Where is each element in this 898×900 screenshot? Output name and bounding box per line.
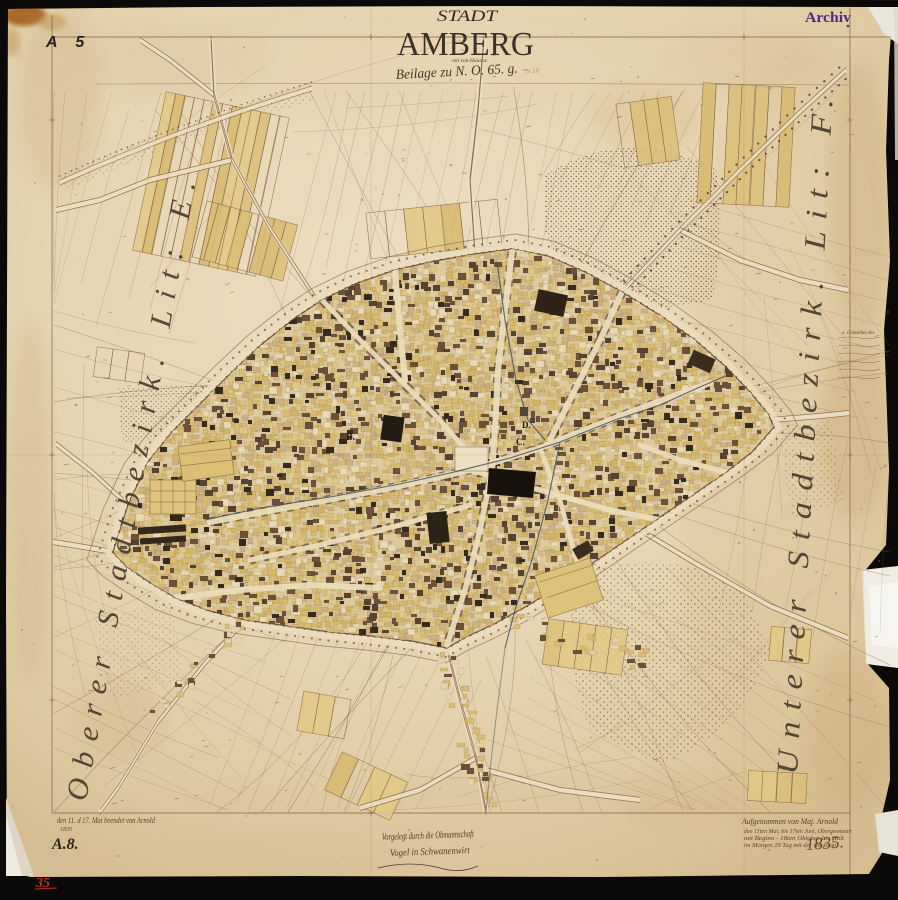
svg-text:1835: 1835 <box>60 827 72 833</box>
svg-text:STADT: STADT <box>437 8 498 25</box>
svg-text:a. Gemarkte des: a. Gemarkte des <box>842 331 875 336</box>
svg-text:A 5: A 5 <box>45 34 91 51</box>
svg-text:1835.: 1835. <box>805 832 844 854</box>
svg-text:C.: C. <box>516 437 525 447</box>
svg-text:A.8.: A.8. <box>51 836 79 853</box>
svg-text:Aufgenommen von Maj. Arnold: Aufgenommen von Maj. Arnold <box>741 817 839 826</box>
svg-text:Archiv: Archiv <box>805 10 852 26</box>
svg-text:B.: B. <box>346 432 356 443</box>
svg-text:den 11. d 17. Mai beendet von: den 11. d 17. Mai beendet von Arnold <box>57 816 156 825</box>
